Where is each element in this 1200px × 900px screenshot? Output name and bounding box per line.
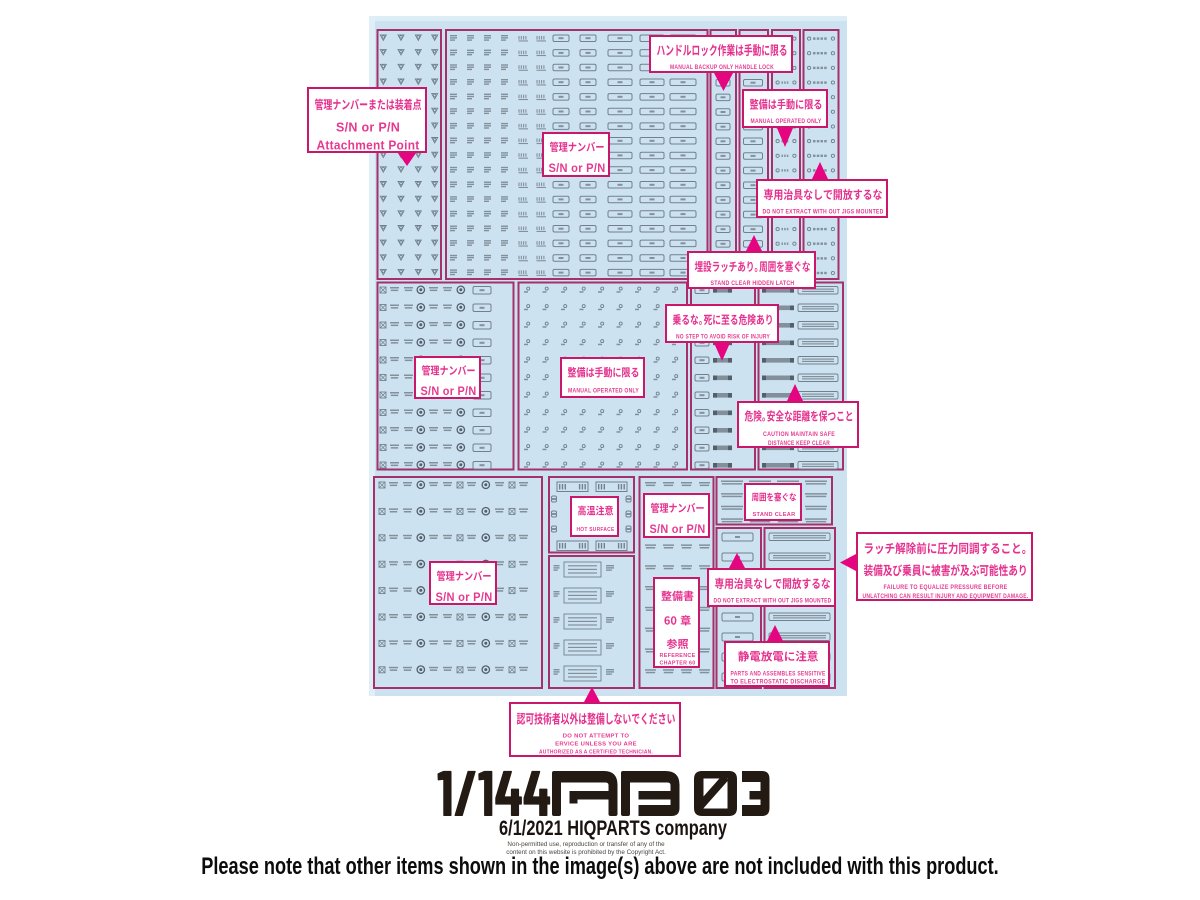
svg-text:CAUTION MAINTAIN SAFE: CAUTION MAINTAIN SAFE: [763, 431, 835, 438]
svg-text:ERVICE UNLESS YOU ARE: ERVICE UNLESS YOU ARE: [555, 742, 637, 748]
svg-text:STAND CLEAR HIDDEN LATCH: STAND CLEAR HIDDEN LATCH: [711, 280, 795, 287]
svg-text:S/N or P/N: S/N or P/N: [549, 163, 606, 175]
svg-text:NO STEP TO AVOID RISK OF INJUR: NO STEP TO AVOID RISK OF INJURY: [676, 334, 770, 341]
svg-text:AUTHORIZED AS A CERTIFIED TECH: AUTHORIZED AS A CERTIFIED TECHNICIAN.: [539, 750, 653, 756]
svg-text:UNLATCHING CAN RESULT INJURY A: UNLATCHING CAN RESULT INJURY AND EQUIPME…: [863, 593, 1029, 600]
svg-text:DISTANCE KEEP CLEAR: DISTANCE KEEP CLEAR: [768, 440, 830, 447]
svg-text:HOT SURFACE: HOT SURFACE: [577, 527, 615, 533]
svg-text:Attachment Point: Attachment Point: [317, 139, 421, 153]
svg-text:CHAPTER 60: CHAPTER 60: [660, 661, 696, 667]
svg-text:DO NOT ATTEMPT TO: DO NOT ATTEMPT TO: [563, 734, 630, 740]
svg-text:S/N or P/N: S/N or P/N: [421, 386, 477, 398]
svg-text:S/N or P/N: S/N or P/N: [336, 121, 400, 135]
svg-text:REFERENCE: REFERENCE: [660, 653, 696, 659]
svg-text:TO ELECTROSTATIC DISCHARGE: TO ELECTROSTATIC DISCHARGE: [731, 679, 826, 686]
svg-text:MANUAL OPERATED ONLY: MANUAL OPERATED ONLY: [751, 118, 822, 125]
svg-text:DO NOT EXTRACT WITH OUT JIGS M: DO NOT EXTRACT WITH OUT JIGS MOUNTED: [763, 209, 884, 216]
svg-text:PARTS AND ASSEMBLES SENSITIVE: PARTS AND ASSEMBLES SENSITIVE: [731, 671, 826, 678]
svg-text:MANUAL BACKUP ONLY HANDLE LOCK: MANUAL BACKUP ONLY HANDLE LOCK: [670, 64, 774, 71]
svg-text:DO NOT EXTRACT WITH OUT JIGS M: DO NOT EXTRACT WITH OUT JIGS MOUNTED: [714, 598, 832, 605]
svg-text:FAILURE TO EQUALIZE PRESSURE B: FAILURE TO EQUALIZE PRESSURE BEFORE: [884, 584, 1008, 591]
svg-text:S/N or P/N: S/N or P/N: [650, 524, 706, 536]
svg-text:STAND CLEAR: STAND CLEAR: [753, 512, 796, 518]
svg-text:MANUAL OPERATED ONLY: MANUAL OPERATED ONLY: [568, 388, 639, 395]
svg-text:S/N or P/N: S/N or P/N: [436, 592, 493, 604]
